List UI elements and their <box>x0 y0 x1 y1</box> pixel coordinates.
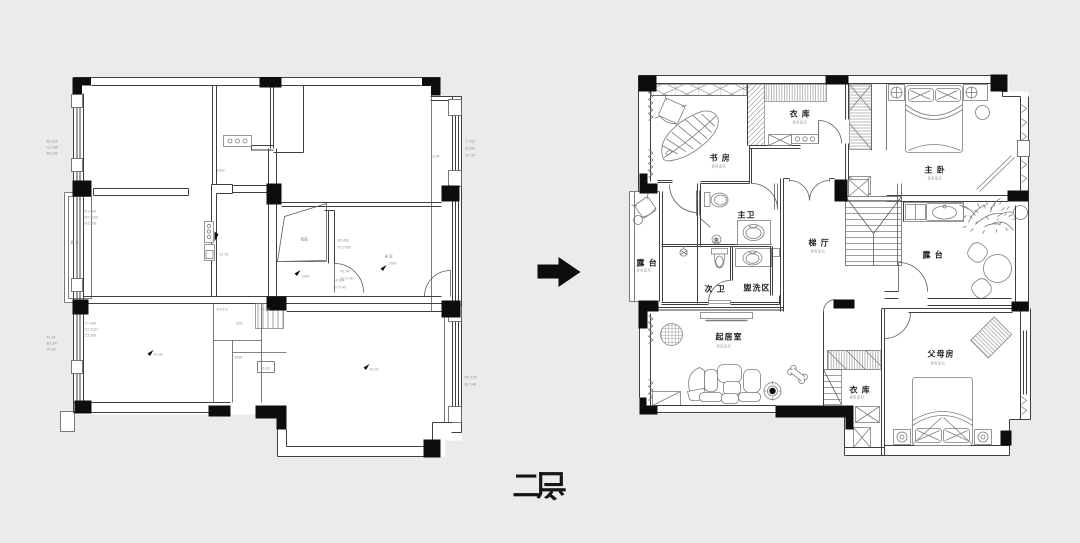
svg-text:1200: 1200 <box>217 169 225 173</box>
svg-text:R2:1103: R2:1103 <box>85 216 98 220</box>
svg-text:露 台: 露 台 <box>71 240 80 245</box>
svg-text:B.294: B.294 <box>466 147 475 151</box>
svg-text:22.06: 22.06 <box>261 308 270 312</box>
svg-text:41.34: 41.34 <box>47 336 56 340</box>
svg-text:R3:506: R3:506 <box>85 222 97 226</box>
svg-text:6.28: 6.28 <box>263 367 270 371</box>
svg-text:使用面积: 使用面积 <box>811 249 826 254</box>
svg-text:43.26: 43.26 <box>370 368 379 372</box>
svg-text:使用面积: 使用面积 <box>931 361 946 366</box>
svg-text:主: 主 <box>714 237 719 244</box>
svg-text:衣 库: 衣 库 <box>790 109 811 119</box>
svg-text:4.6.4.6: 4.6.4.6 <box>217 308 228 312</box>
svg-text:C2:3127: C2:3127 <box>85 328 99 332</box>
svg-text:B2.146: B2.146 <box>465 383 476 387</box>
svg-text:M7.176: M7.176 <box>465 376 477 380</box>
svg-text:次 卫: 次 卫 <box>705 284 726 294</box>
svg-text:97.a4: 97.a4 <box>47 348 56 352</box>
svg-text:使用面积: 使用面积 <box>637 268 652 273</box>
svg-text:储藏: 储藏 <box>301 237 309 242</box>
svg-text:41.94: 41.94 <box>341 270 350 274</box>
svg-text:2200: 2200 <box>302 275 310 279</box>
svg-text:父母房: 父母房 <box>927 349 955 359</box>
svg-text:21.06: 21.06 <box>220 253 229 257</box>
svg-text:露 台: 露 台 <box>637 258 658 268</box>
svg-text:81.202: 81.202 <box>47 140 58 144</box>
svg-text:C.412: C.412 <box>466 140 476 144</box>
svg-text:B7.2.40: B7.2.40 <box>341 277 353 281</box>
svg-text:2780: 2780 <box>389 262 397 266</box>
svg-text:盥洗区: 盥洗区 <box>744 283 771 293</box>
svg-text:B2.342: B2.342 <box>47 152 58 156</box>
svg-text:13.94: 13.94 <box>431 155 440 159</box>
svg-text:R1:906: R1:906 <box>85 210 97 214</box>
svg-text:露 台: 露 台 <box>923 250 944 260</box>
svg-text:使用面积: 使用面积 <box>712 164 727 169</box>
svg-text:使用面积: 使用面积 <box>793 120 808 125</box>
svg-text:V7.900: V7.900 <box>85 322 96 326</box>
svg-text:T2.7995: T2.7995 <box>338 246 351 250</box>
svg-text:起居室: 起居室 <box>715 332 743 342</box>
svg-text:42.98: 42.98 <box>154 353 163 357</box>
svg-text:C2.296: C2.296 <box>47 146 59 150</box>
svg-text:使用面积: 使用面积 <box>717 344 732 349</box>
svg-text:衣 库: 衣 库 <box>850 385 871 395</box>
svg-text:B7.0.40: B7.0.40 <box>334 286 346 290</box>
svg-text:B2.400: B2.400 <box>338 239 349 243</box>
svg-text:使用面积: 使用面积 <box>928 176 943 181</box>
svg-text:梯 厅: 梯 厅 <box>809 238 830 248</box>
svg-text:主 卧: 主 卧 <box>925 165 946 175</box>
svg-text:居 室: 居 室 <box>385 254 394 259</box>
svg-text:B3.3m: B3.3m <box>47 342 57 346</box>
svg-text:B7.94: B7.94 <box>466 154 475 158</box>
svg-text:使用面积: 使用面积 <box>850 395 865 400</box>
svg-text:C3:260: C3:260 <box>85 334 97 338</box>
svg-text:B0W: B0W <box>235 356 243 360</box>
svg-text:500: 500 <box>237 322 243 326</box>
svg-text:书 房: 书 房 <box>710 153 731 163</box>
svg-text:主卫: 主卫 <box>738 210 756 220</box>
